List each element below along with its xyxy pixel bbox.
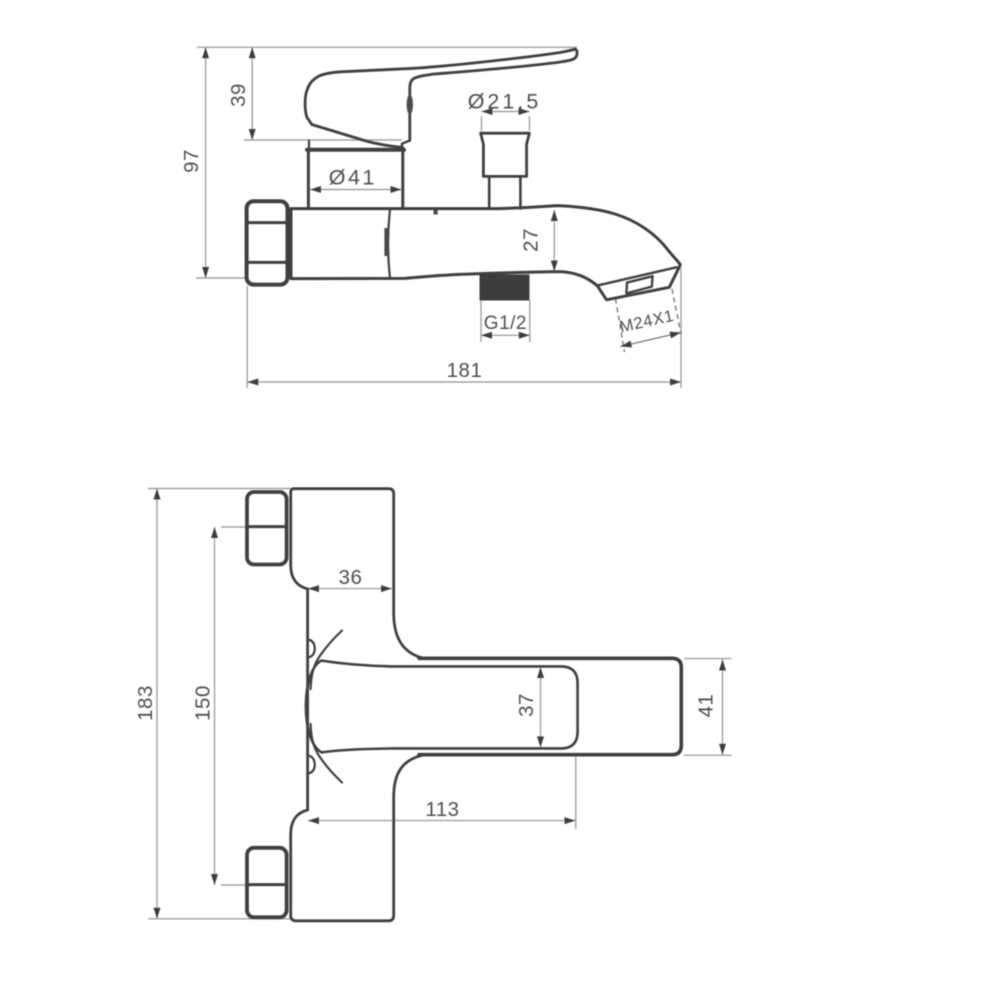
svg-text:150: 150 bbox=[192, 685, 215, 721]
svg-text:Ø41: Ø41 bbox=[329, 166, 377, 190]
svg-text:113: 113 bbox=[425, 798, 459, 821]
svg-text:Ø21.5: Ø21.5 bbox=[468, 90, 542, 114]
svg-text:41: 41 bbox=[695, 694, 718, 718]
svg-text:39: 39 bbox=[227, 83, 250, 107]
svg-text:97: 97 bbox=[180, 149, 203, 173]
svg-text:G1/2: G1/2 bbox=[484, 313, 527, 334]
svg-text:181: 181 bbox=[447, 359, 483, 382]
svg-text:M24X1: M24X1 bbox=[618, 307, 676, 337]
svg-text:27: 27 bbox=[520, 228, 543, 252]
svg-text:36: 36 bbox=[339, 566, 363, 589]
svg-text:183: 183 bbox=[134, 685, 157, 721]
svg-text:37: 37 bbox=[515, 693, 538, 717]
